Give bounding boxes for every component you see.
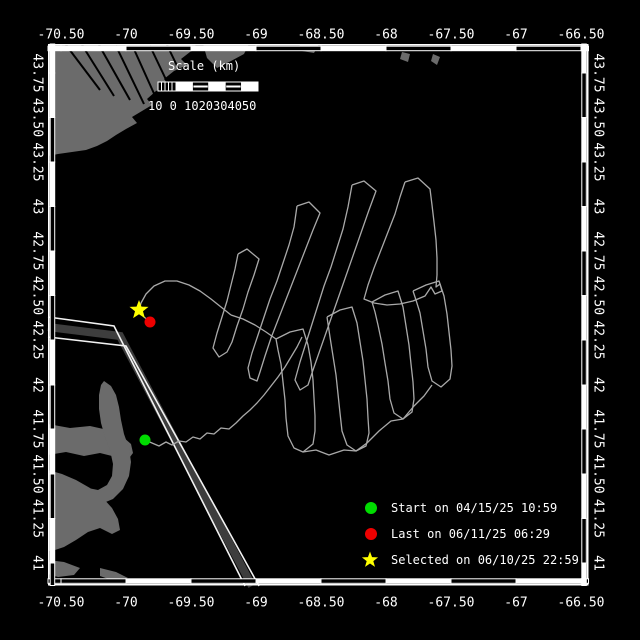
lat-tick-label-left: 43.25 xyxy=(30,142,45,181)
border-band-segment xyxy=(50,44,55,73)
border-band-segment xyxy=(256,46,321,51)
border-band-segment xyxy=(582,340,587,385)
border-band-segment xyxy=(50,118,55,163)
border-band-segment xyxy=(516,579,581,584)
border-band-segment xyxy=(50,296,55,341)
border-band-segment xyxy=(582,519,587,564)
border-band-segment xyxy=(126,46,191,51)
lat-tick-label-right: 41.25 xyxy=(591,499,606,538)
border-band-segment xyxy=(582,251,587,296)
border-band-segment xyxy=(582,296,587,341)
lat-tick-label-right: 41.50 xyxy=(591,454,606,493)
lat-tick-label-right: 43 xyxy=(591,199,606,215)
border-band-segment xyxy=(191,46,256,51)
border-band-segment xyxy=(50,563,55,586)
lon-tick-label-bottom: -69.50 xyxy=(168,596,215,611)
border-band-segment xyxy=(321,46,386,51)
lat-tick-label-left: 43.50 xyxy=(30,98,45,137)
lat-tick-label-left: 41.75 xyxy=(30,409,45,448)
border-band-segment xyxy=(582,563,587,586)
lon-tick-label-top: -68.50 xyxy=(298,28,345,43)
lat-tick-label-right: 41.75 xyxy=(591,409,606,448)
lon-tick-label-bottom: -67 xyxy=(504,596,527,611)
border-band-segment xyxy=(50,162,55,207)
scale-bar-title: Scale (km) xyxy=(168,59,240,73)
scale-bar-hatch-block xyxy=(158,82,176,91)
border-band-segment xyxy=(61,46,126,51)
border-band-segment xyxy=(321,579,386,584)
scale-bar-segment xyxy=(209,82,225,91)
lon-tick-label-bottom: -69 xyxy=(244,596,267,611)
scale-bar-graphic xyxy=(158,82,258,91)
lon-tick-label-top: -69.50 xyxy=(168,28,215,43)
scale-bar-segment xyxy=(176,82,192,91)
border-band-segment xyxy=(451,46,516,51)
lat-tick-label-right: 43.75 xyxy=(591,53,606,92)
border-band-segment xyxy=(191,579,256,584)
legend-start-dot-icon xyxy=(365,502,377,514)
lon-tick-label-bottom: -70 xyxy=(114,596,137,611)
border-band-segment xyxy=(256,579,321,584)
legend-last-dot-icon xyxy=(365,528,377,540)
lat-tick-label-right: 43.50 xyxy=(591,98,606,137)
legend: Start on 04/15/25 10:59 Last on 06/11/25… xyxy=(362,501,579,567)
lon-tick-label-top: -70 xyxy=(114,28,137,43)
border-band-segment xyxy=(50,385,55,429)
lon-tick-label-top: -69 xyxy=(244,28,267,43)
lon-tick-label-top: -70.50 xyxy=(38,28,85,43)
border-band-segment xyxy=(582,385,587,429)
lat-tick-label-left: 41.25 xyxy=(30,499,45,538)
legend-selected-label: Selected on 06/10/25 22:59 xyxy=(391,553,579,567)
border-band-segment xyxy=(50,73,55,118)
scale-bar-numbers: 10 0 1020304050 xyxy=(148,99,256,113)
border-band-segment xyxy=(516,46,581,51)
legend-start-label: Start on 04/15/25 10:59 xyxy=(391,501,557,515)
lat-tick-label-left: 42.50 xyxy=(30,276,45,315)
last-position-marker[interactable] xyxy=(145,317,156,328)
lat-tick-label-right: 43.25 xyxy=(591,142,606,181)
lon-tick-label-top: -66.50 xyxy=(558,28,605,43)
border-band-segment xyxy=(582,162,587,207)
border-band-segment xyxy=(582,118,587,163)
border-band-segment xyxy=(50,340,55,385)
lat-tick-label-left: 42.25 xyxy=(30,320,45,359)
lat-tick-label-left: 42.75 xyxy=(30,231,45,270)
lon-tick-label-bottom: -67.50 xyxy=(428,596,475,611)
lat-tick-label-right: 42.25 xyxy=(591,320,606,359)
lat-tick-label-left: 41.50 xyxy=(30,454,45,493)
lat-tick-label-right: 41 xyxy=(591,555,606,571)
glider-track-map[interactable]: -70.50-70.50-70-70-69.50-69.50-69-69-68.… xyxy=(0,0,640,640)
border-band-segment xyxy=(50,474,55,519)
lon-tick-label-top: -67 xyxy=(504,28,527,43)
lat-tick-label-left: 42 xyxy=(30,377,45,393)
border-band-segment xyxy=(126,579,191,584)
border-band-segment xyxy=(386,46,451,51)
lon-tick-label-bottom: -68 xyxy=(374,596,397,611)
lat-tick-label-left: 43 xyxy=(30,199,45,215)
border-band-segment xyxy=(50,207,55,252)
lat-tick-label-right: 42.50 xyxy=(591,276,606,315)
lon-tick-label-bottom: -68.50 xyxy=(298,596,345,611)
scale-bar-segment xyxy=(242,82,258,91)
border-band-segment xyxy=(61,579,126,584)
border-band-segment xyxy=(451,579,516,584)
border-band-segment xyxy=(50,251,55,296)
border-band-segment xyxy=(50,429,55,474)
lat-tick-label-left: 43.75 xyxy=(30,53,45,92)
border-band-segment xyxy=(50,519,55,564)
border-band-segment xyxy=(582,474,587,519)
legend-last-label: Last on 06/11/25 06:29 xyxy=(391,527,550,541)
lat-tick-label-left: 41 xyxy=(30,555,45,571)
lon-tick-label-bottom: -66.50 xyxy=(558,596,605,611)
border-band-segment xyxy=(582,429,587,474)
lat-tick-label-right: 42.75 xyxy=(591,231,606,270)
border-band-segment xyxy=(582,207,587,252)
lon-tick-label-top: -68 xyxy=(374,28,397,43)
border-band-segment xyxy=(582,73,587,118)
border-band-segment xyxy=(582,44,587,73)
lon-tick-label-top: -67.50 xyxy=(428,28,475,43)
border-band-segment xyxy=(386,579,451,584)
lon-tick-label-bottom: -70.50 xyxy=(38,596,85,611)
start-position-marker[interactable] xyxy=(140,435,151,446)
lat-tick-label-right: 42 xyxy=(591,377,606,393)
map-canvas[interactable]: -70.50-70.50-70-70-69.50-69.50-69-69-68.… xyxy=(0,0,640,640)
